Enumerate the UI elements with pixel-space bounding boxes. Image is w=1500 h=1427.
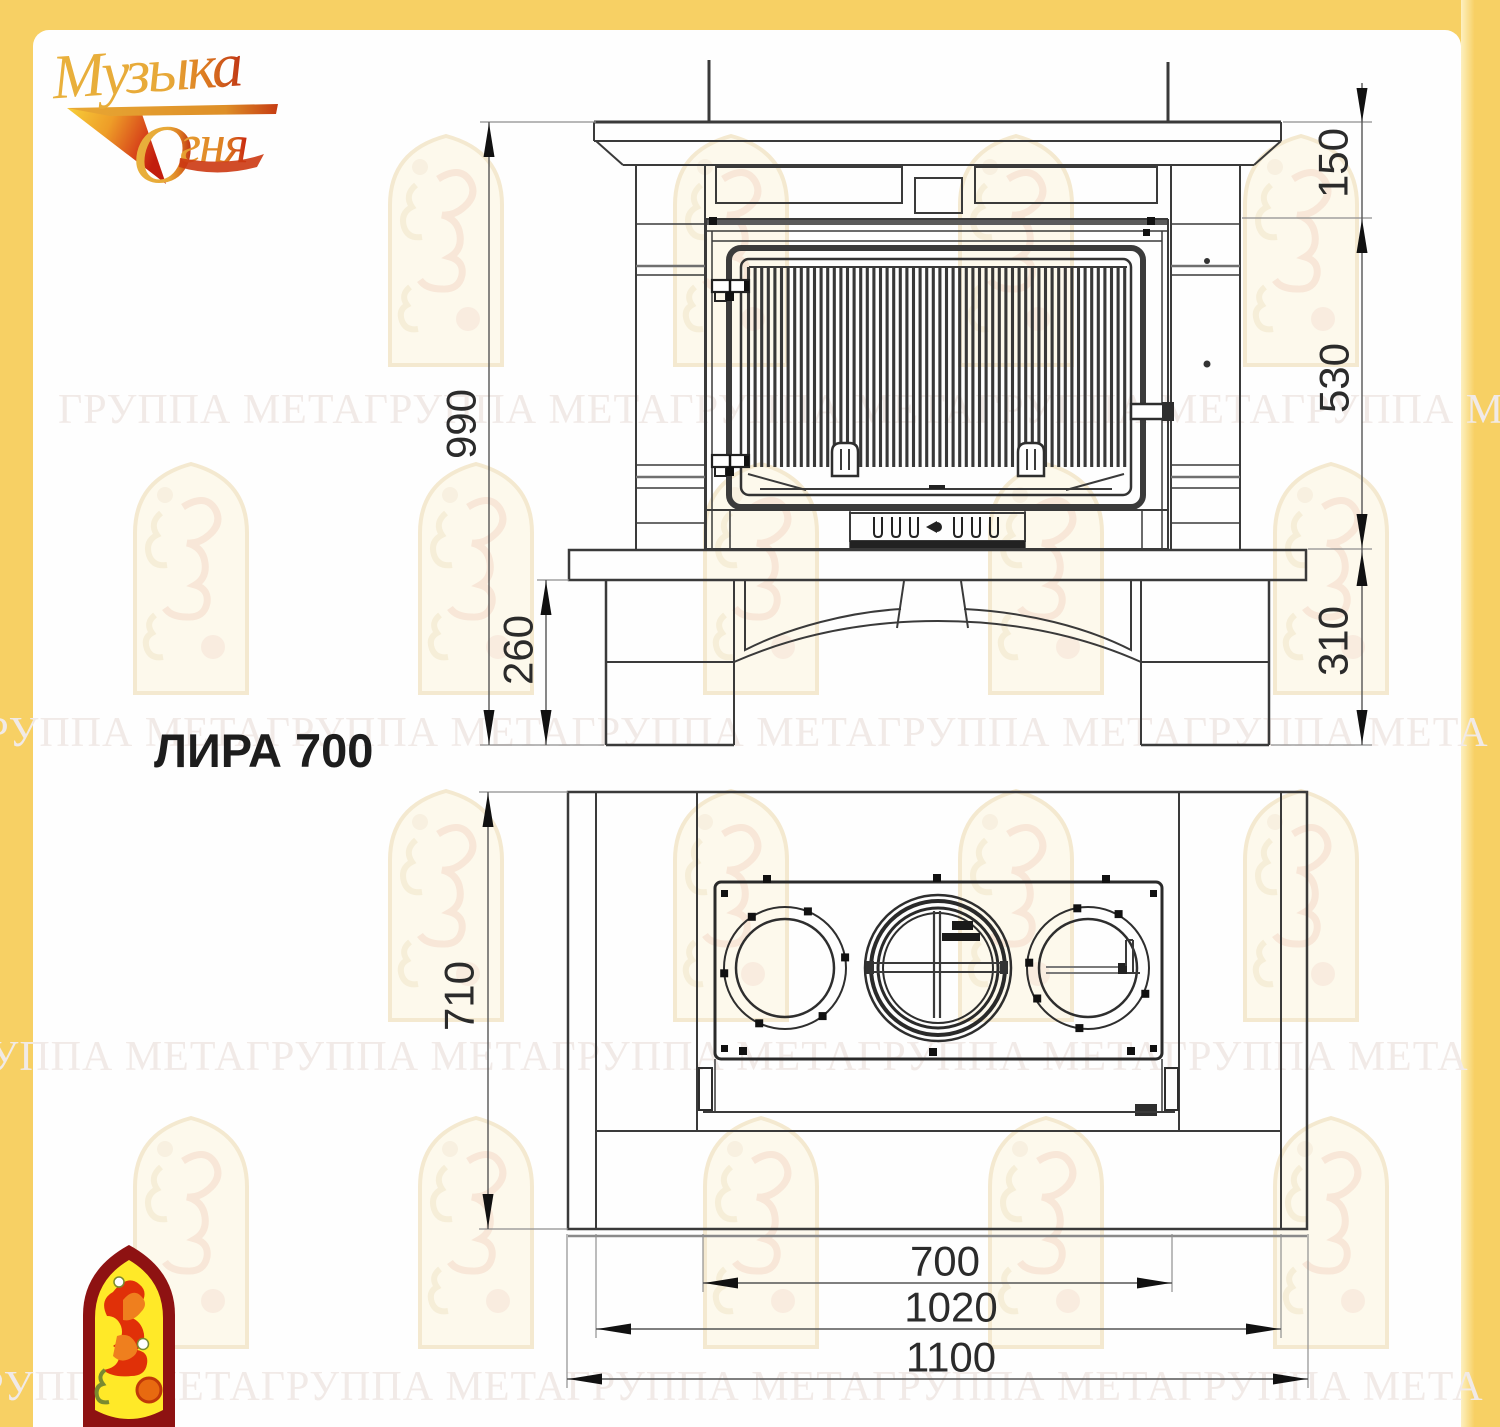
svg-text:Музыка: Музыка (50, 38, 244, 112)
svg-text:710: 710 (436, 961, 483, 1031)
svg-text:260: 260 (495, 615, 542, 685)
svg-text:1020: 1020 (904, 1284, 997, 1331)
svg-text:ЛИРА 700: ЛИРА 700 (154, 724, 373, 777)
svg-text:990: 990 (438, 389, 485, 459)
svg-text:1100: 1100 (906, 1334, 996, 1381)
svg-text:530: 530 (1311, 343, 1358, 413)
svg-text:ГРУППА МЕТАГРУППА МЕТАГРУППА М: ГРУППА МЕТАГРУППА МЕТАГРУППА МЕТАГРУППА … (0, 1034, 1469, 1080)
svg-text:150: 150 (1310, 128, 1357, 198)
svg-text:ГРУППА МЕТАГРУППА МЕТАГРУППА М: ГРУППА МЕТАГРУППА МЕТАГРУППА МЕТАГРУППА … (0, 1364, 1484, 1410)
svg-text:700: 700 (910, 1238, 980, 1285)
svg-text:310: 310 (1310, 606, 1357, 676)
svg-text:ГРУППА МЕТАГРУППА МЕТАГРУППА М: ГРУППА МЕТАГРУППА МЕТАГРУППА МЕТАГРУППА … (58, 387, 1500, 433)
